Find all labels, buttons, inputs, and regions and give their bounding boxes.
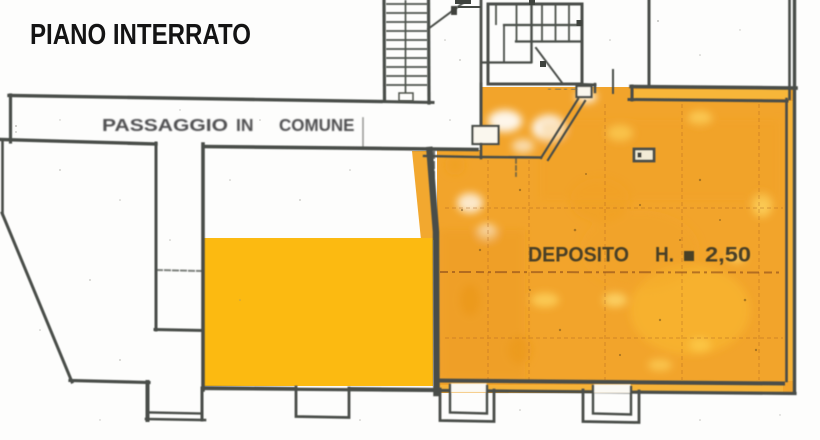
svg-text:PASSAGGIO: PASSAGGIO: [102, 115, 228, 135]
svg-text:IN: IN: [236, 115, 254, 135]
svg-text:2,50: 2,50: [705, 244, 751, 267]
svg-text:H.: H.: [655, 244, 674, 267]
svg-text:COMUNE: COMUNE: [279, 115, 355, 135]
svg-text:DEPOSITO: DEPOSITO: [528, 244, 629, 267]
svg-text:PIANO INTERRATO: PIANO INTERRATO: [30, 19, 251, 51]
